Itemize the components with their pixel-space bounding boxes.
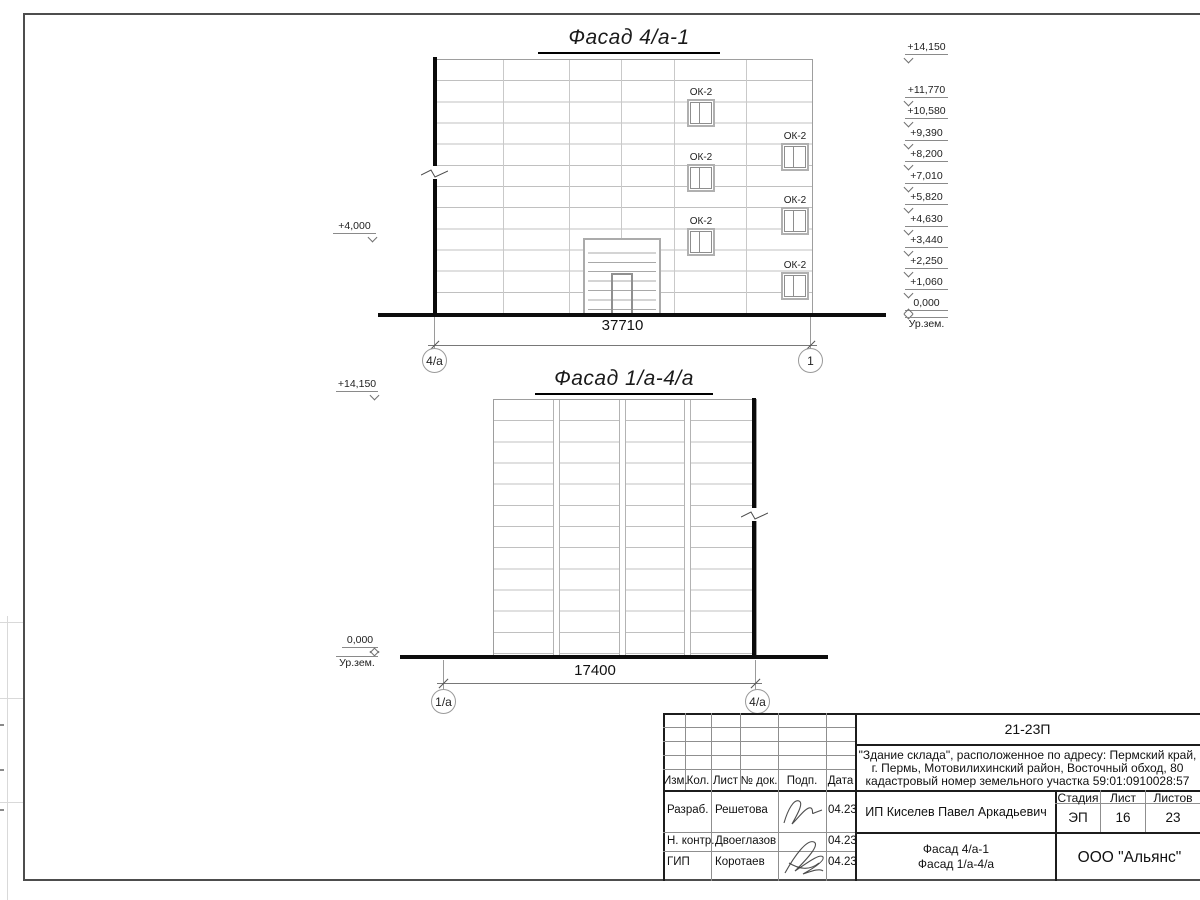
elevation-mark: +9,390 xyxy=(905,127,948,141)
titleblock-border xyxy=(663,713,665,881)
window-ok2: ОК-2 xyxy=(781,143,809,171)
facade1-bay-line xyxy=(569,60,570,314)
extension-line xyxy=(755,660,756,692)
elevation-mark: 0,000 xyxy=(905,297,948,311)
gate xyxy=(583,238,661,317)
axis-bubble-1: 1 xyxy=(798,348,823,373)
stage-value: ЭП xyxy=(1056,810,1100,825)
window-label: ОК-2 xyxy=(771,260,819,271)
elevation-mark: +14,150 xyxy=(336,378,378,392)
margin-artifact-line xyxy=(0,698,23,699)
stage-label: Стадия xyxy=(1056,791,1100,805)
facade2-title: Фасад 1/а-4/а xyxy=(535,367,713,395)
signature xyxy=(780,793,824,829)
sheets-total: 23 xyxy=(1146,810,1200,825)
date-gip: 04.23 xyxy=(828,856,857,868)
window-frame xyxy=(784,210,806,232)
window-frame xyxy=(784,146,806,168)
facade2-dimension: 17400 xyxy=(545,662,645,679)
margin-artifact-mark xyxy=(0,809,4,811)
col-header-doc: № док. xyxy=(740,775,778,787)
sheet-content-line2: Фасад 1/а-4/а xyxy=(857,857,1055,871)
window-ok2: ОК-2 xyxy=(781,272,809,300)
break-symbol xyxy=(741,508,768,521)
facade2-bay-joint xyxy=(684,400,691,655)
dimension-line xyxy=(437,683,762,684)
facade2-edge-line xyxy=(752,398,756,658)
ground-level-mark: Ур.зем. xyxy=(905,317,948,331)
facade2-bay-joint xyxy=(619,400,626,655)
facade2-bay-joint xyxy=(553,400,560,655)
titleblock-row-line xyxy=(663,832,855,833)
facade1-bay-line xyxy=(746,60,747,314)
role-nkontr: Н. контр. xyxy=(667,835,714,847)
margin-artifact-mark xyxy=(0,769,4,771)
role-gip: ГИП xyxy=(667,856,690,868)
date-razrab: 04.23 xyxy=(828,804,857,816)
window-label: ОК-2 xyxy=(677,216,725,227)
col-header-izm: Изм. xyxy=(663,775,685,787)
elevation-mark: +5,820 xyxy=(905,191,948,205)
col-header-podp: Подп. xyxy=(778,775,826,787)
sheet-label: Лист xyxy=(1101,791,1145,805)
elevation-mark: 0,000 xyxy=(342,634,378,648)
window-label: ОК-2 xyxy=(677,152,725,163)
facade1-title: Фасад 4/а-1 xyxy=(538,26,720,54)
dimension-line xyxy=(428,345,817,346)
titleblock-line xyxy=(855,744,1200,746)
name-razrab: Решетова xyxy=(715,804,768,816)
elevation-mark: +8,200 xyxy=(905,148,948,162)
signature xyxy=(779,833,825,878)
window-frame xyxy=(690,102,712,124)
window-label: ОК-2 xyxy=(771,195,819,206)
titleblock-border xyxy=(663,713,1200,715)
elevation-mark: +10,580 xyxy=(905,105,948,119)
break-symbol xyxy=(421,166,448,179)
col-header-list: Лист xyxy=(711,775,740,787)
project-address-line2: г. Пермь, Мотовилихинский район, Восточн… xyxy=(855,761,1200,775)
window-ok2: ОК-2 xyxy=(687,99,715,127)
facade1-bay-line xyxy=(503,60,504,314)
facade1-dimension: 37710 xyxy=(570,317,675,334)
break-zigzag-icon xyxy=(741,508,768,521)
axis-bubble-4a: 4/а xyxy=(745,689,770,714)
window-label: ОК-2 xyxy=(677,87,725,98)
window-ok2: ОК-2 xyxy=(687,228,715,256)
extension-line xyxy=(443,660,444,692)
role-razrab: Разраб. xyxy=(667,804,708,816)
company-name: ООО "Альянс" xyxy=(1057,849,1200,867)
break-zigzag-icon xyxy=(421,166,448,179)
facade1-bay-line xyxy=(674,60,675,314)
elevation-mark: +7,010 xyxy=(905,170,948,184)
col-header-kol: Кол. xyxy=(685,775,711,787)
elevation-mark: +2,250 xyxy=(905,255,948,269)
sheet-content-line1: Фасад 4/а-1 xyxy=(857,842,1055,856)
project-address-line1: "Здание склада", расположенное по адресу… xyxy=(855,748,1200,762)
window-ok2: ОК-2 xyxy=(781,207,809,235)
frame-top-line xyxy=(23,13,1200,15)
margin-artifact-line xyxy=(0,802,23,803)
titleblock-row-line xyxy=(663,851,855,852)
elevation-mark: +3,440 xyxy=(905,234,948,248)
ground-level-mark: Ур.зем. xyxy=(336,656,378,670)
doc-number: 21-23П xyxy=(855,721,1200,737)
margin-artifact-mark xyxy=(0,724,4,726)
elevation-mark: +14,150 xyxy=(905,41,948,55)
name-gip: Коротаев xyxy=(715,856,765,868)
frame-bottom-line xyxy=(23,879,1200,881)
margin-artifact-line xyxy=(0,622,23,623)
col-header-data: Дата xyxy=(826,775,855,787)
window-ok2: ОК-2 xyxy=(687,164,715,192)
window-label: ОК-2 xyxy=(771,131,819,142)
date-nkontr: 04.23 xyxy=(828,835,857,847)
frame-left-line xyxy=(23,13,25,881)
elevation-mark: +4,000 xyxy=(333,220,376,234)
sheets-label: Листов xyxy=(1146,791,1200,805)
facade2-ground-line xyxy=(400,655,828,659)
client-name: ИП Киселев Павел Аркадьевич xyxy=(857,805,1055,819)
margin-artifact-line xyxy=(7,616,8,900)
titleblock-line xyxy=(855,832,1200,834)
titleblock-col-line xyxy=(826,713,827,881)
name-nkontr: Двоеглазов xyxy=(715,835,776,847)
elevation-mark: +11,770 xyxy=(905,84,948,98)
elevation-mark: +4,630 xyxy=(905,213,948,227)
man-door xyxy=(611,273,633,315)
window-frame xyxy=(784,275,806,297)
project-address-line3: кадастровый номер земельного участка 59:… xyxy=(855,774,1200,788)
facade1-edge-line xyxy=(433,57,437,316)
window-frame xyxy=(690,231,712,253)
facade2-building xyxy=(493,399,757,656)
titleblock-col-line xyxy=(711,713,712,881)
sheet-number: 16 xyxy=(1101,810,1145,825)
drawing-sheet: Фасад 4/а-1 ОК-2 ОК-2 ОК-2 ОК-2 ОК-2 ОК-… xyxy=(0,0,1200,900)
axis-bubble-1a: 1/а xyxy=(431,689,456,714)
elevation-mark: +1,060 xyxy=(905,276,948,290)
window-frame xyxy=(690,167,712,189)
axis-bubble-4a: 4/а xyxy=(422,348,447,373)
